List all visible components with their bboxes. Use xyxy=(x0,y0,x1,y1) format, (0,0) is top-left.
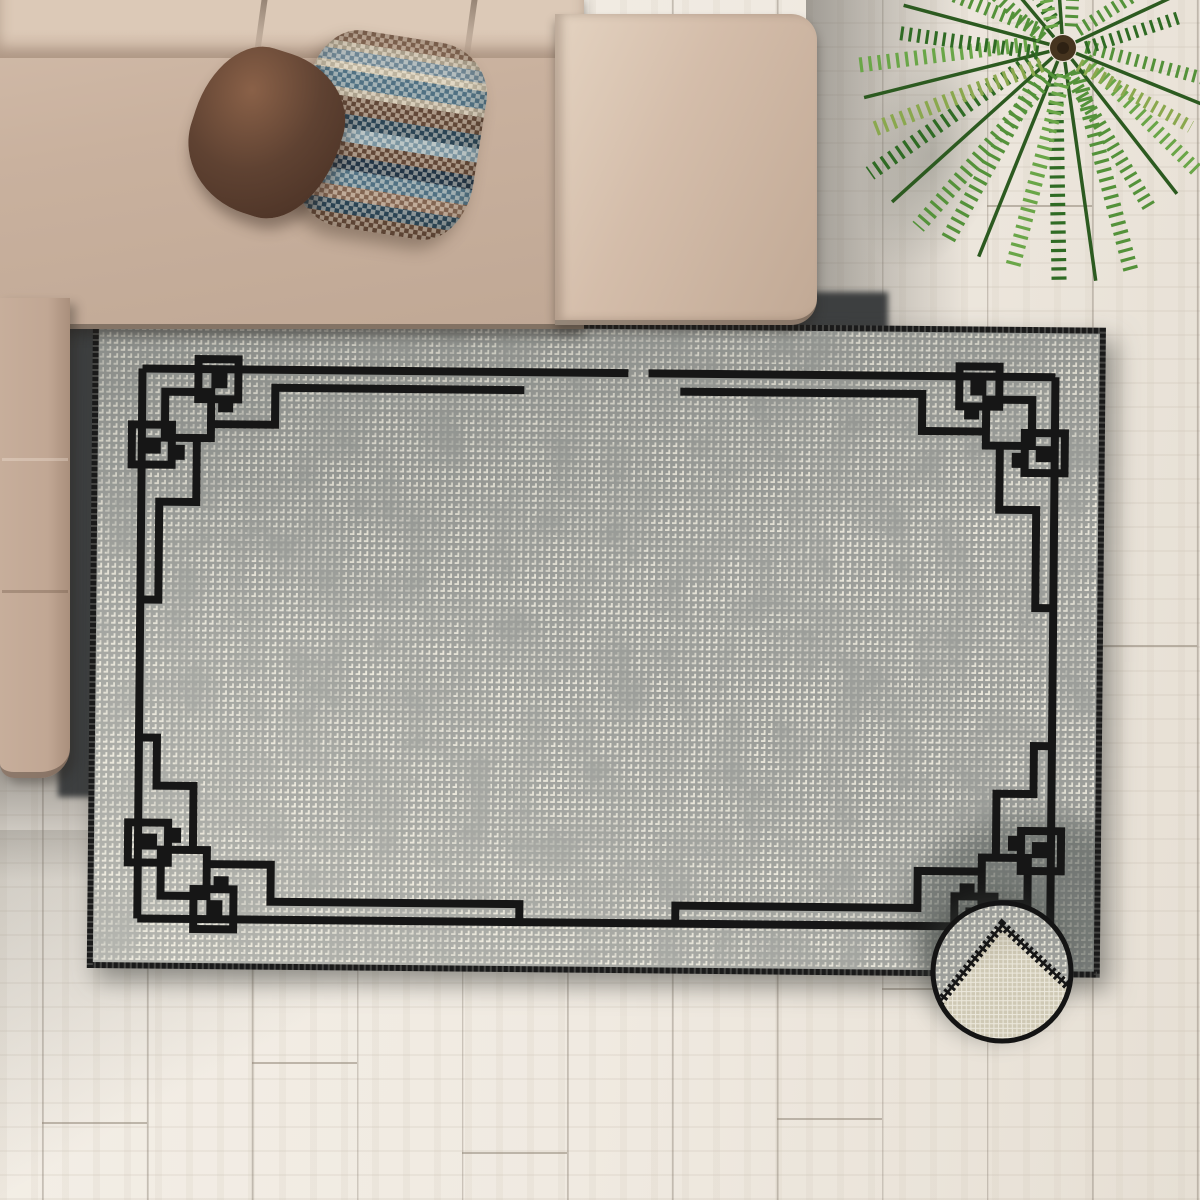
area-rug xyxy=(87,318,1106,978)
inset-graphic xyxy=(929,899,1075,1045)
cushion-crease xyxy=(2,590,68,593)
cushion-crease xyxy=(2,458,68,461)
sofa-backrest-cushions xyxy=(0,0,584,58)
plank-joint xyxy=(1092,645,1197,647)
sofa-chaise-section xyxy=(555,14,817,325)
plank-joint xyxy=(462,1152,567,1154)
room-scene xyxy=(0,0,1200,1200)
palm-fronds xyxy=(856,0,1200,286)
corner-detail-inset xyxy=(929,899,1075,1045)
plank-joint xyxy=(777,1118,882,1120)
rug-graphic xyxy=(87,318,1106,978)
palm-plant xyxy=(828,0,1200,310)
sofa-left-section xyxy=(0,298,70,778)
